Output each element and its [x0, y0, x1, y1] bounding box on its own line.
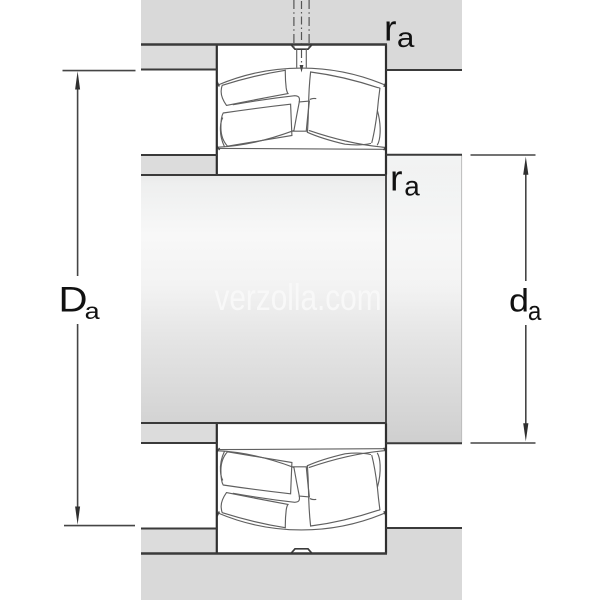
svg-text:d: d — [509, 282, 529, 318]
svg-text:a: a — [528, 296, 542, 326]
svg-text:r: r — [390, 158, 403, 199]
svg-text:verzolla.com: verzolla.com — [215, 277, 382, 318]
svg-text:r: r — [384, 7, 397, 48]
svg-text:a: a — [397, 22, 415, 53]
svg-text:a: a — [85, 298, 100, 324]
svg-text:D: D — [59, 281, 88, 320]
svg-text:a: a — [404, 170, 420, 201]
